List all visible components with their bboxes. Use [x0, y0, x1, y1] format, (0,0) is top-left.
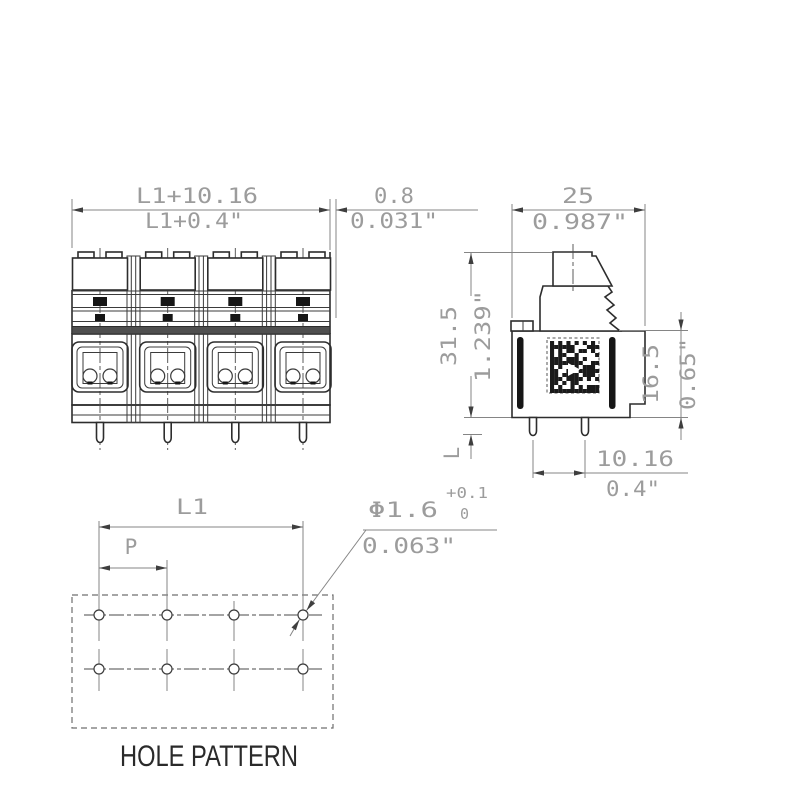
side-view [464, 244, 688, 436]
front-view [72, 248, 331, 450]
dim-label-depth-mm: 25 [562, 184, 594, 208]
dim-label-body-height-in: 0.65" [676, 338, 700, 410]
dim-label-height-mm: 31.5 [437, 306, 461, 366]
dim-pin-length: L [440, 435, 482, 460]
clamp-band-lines [72, 291, 330, 322]
dim-label-body-height-mm: 16.5 [639, 344, 663, 404]
dim-label-hole-span: L1 [176, 495, 208, 519]
dim-label-edge-offset-in: 0.031" [350, 209, 438, 233]
hole-pattern-title: HOLE PATTERN [120, 740, 298, 773]
side-top-block [553, 252, 612, 286]
side-slot-left [517, 337, 524, 409]
dim-hole-diameter: Φ1.6 +0.1 0 0.063" [290, 484, 497, 636]
dim-label-hole-dia-mm: Φ1.6 [368, 498, 438, 522]
dim-label-depth-in: 0.987" [532, 210, 628, 234]
terminal-block-drawing: HOLE PATTERN L1+10.16 L1+0.4" 0.8 0.031" [0, 0, 800, 800]
dim-label-hole-pitch: P [125, 535, 138, 559]
side-mid-block [540, 286, 620, 331]
dim-label-overall-width-in: L1+0.4" [145, 209, 243, 233]
dim-front-overall-width: L1+10.16 L1+0.4" [72, 184, 330, 250]
dim-label-overall-width-mm: L1+10.16 [136, 184, 258, 208]
hole-pattern-view: HOLE PATTERN [72, 521, 333, 773]
front-bottom-strip [72, 405, 330, 423]
side-slot-right [609, 337, 616, 409]
dim-label-tolerance-upper: +0.1 [446, 484, 488, 502]
dim-hole-span: L1 [99, 495, 303, 530]
side-pins [530, 418, 589, 436]
dim-label-pin-length: L [440, 447, 464, 460]
dim-edge-offset: 0.8 0.031" [336, 184, 478, 318]
mounting-holes [94, 610, 308, 674]
technical-drawing-page: HOLE PATTERN L1+10.16 L1+0.4" 0.8 0.031" [0, 0, 800, 800]
dim-label-hole-dia-in: 0.063" [362, 534, 456, 558]
dim-hole-pitch: P [99, 535, 167, 571]
side-flange [511, 321, 533, 331]
dim-label-height-in: 1.239" [471, 290, 495, 382]
front-seam-band [72, 327, 330, 335]
dim-label-pin-spacing-in: 0.4" [606, 477, 660, 501]
dim-label-tolerance-lower: 0 [460, 505, 469, 523]
dim-pin-spacing: 10.16 0.4" [533, 440, 688, 501]
dim-label-pin-spacing-mm: 10.16 [596, 447, 674, 471]
dim-label-edge-offset-mm: 0.8 [374, 184, 414, 208]
